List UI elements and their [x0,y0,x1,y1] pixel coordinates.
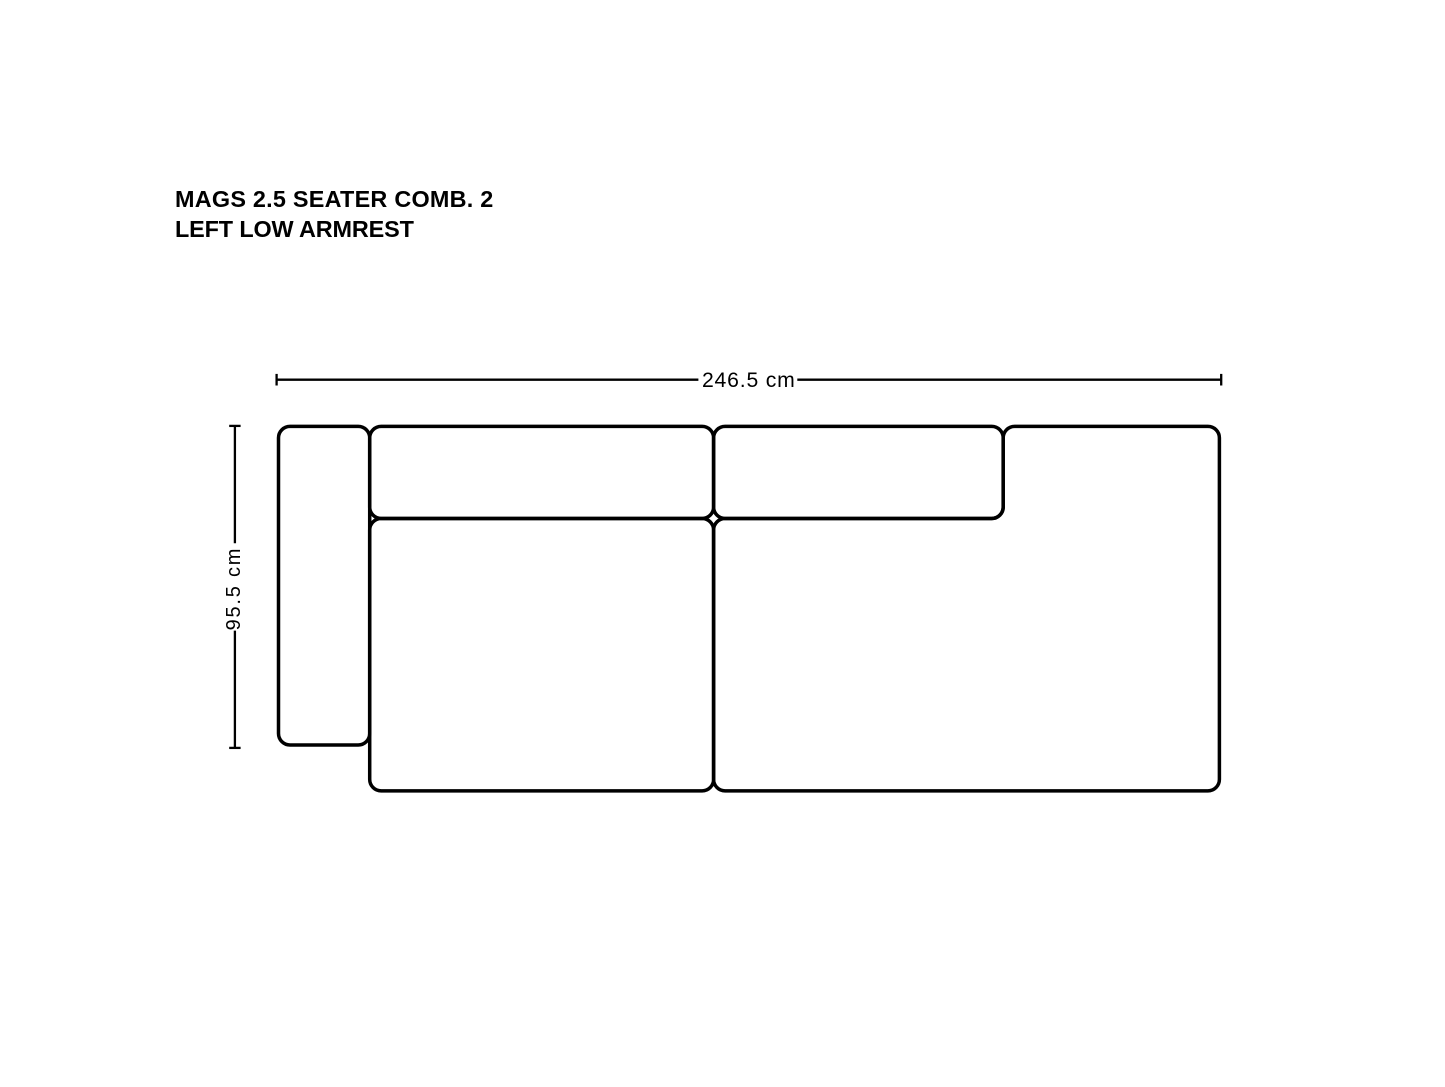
svg-text:MAGS 2.5 SEATER COMB. 2: MAGS 2.5 SEATER COMB. 2 [175,186,494,212]
svg-text:246.5 cm: 246.5 cm [702,369,796,392]
svg-text:95.5 cm: 95.5 cm [223,547,245,631]
svg-text:LEFT LOW ARMREST: LEFT LOW ARMREST [175,216,415,242]
